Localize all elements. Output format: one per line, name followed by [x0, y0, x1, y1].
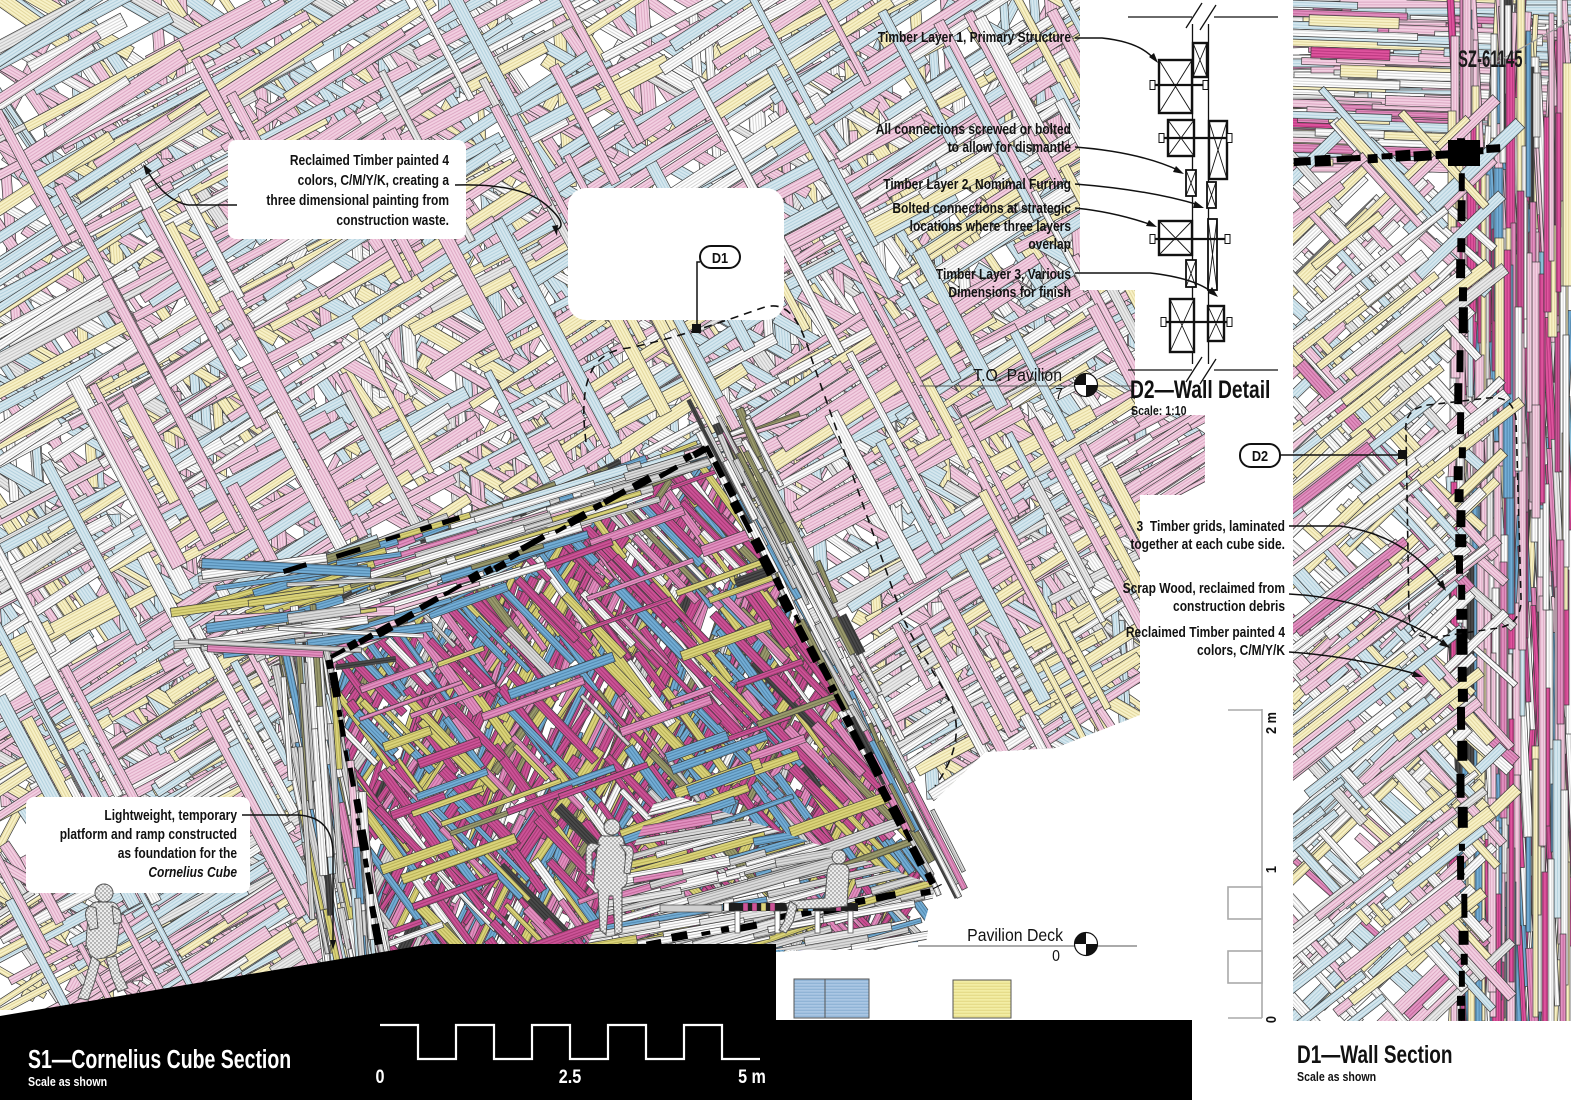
svg-text:to allow for dismantle: to allow for dismantle [948, 139, 1072, 156]
svg-text:2 m: 2 m [1262, 712, 1279, 734]
svg-text:D2—Wall Detail: D2—Wall Detail [1130, 376, 1270, 404]
svg-text:Scale: 1:10: Scale: 1:10 [1131, 404, 1186, 418]
svg-text:1: 1 [1262, 866, 1279, 873]
svg-text:overlap: overlap [1028, 236, 1071, 253]
svg-text:construction debris: construction debris [1173, 598, 1285, 615]
svg-text:2.5: 2.5 [559, 1066, 582, 1088]
svg-text:7: 7 [1055, 385, 1063, 403]
svg-text:Scale as shown: Scale as shown [28, 1075, 107, 1089]
svg-text:Reclaimed Timber painted 4: Reclaimed Timber painted 4 [1126, 624, 1286, 641]
svg-text:3 Timber grids, laminated: 3 Timber grids, laminated [1137, 518, 1285, 535]
svg-text:D1: D1 [712, 249, 729, 266]
svg-text:SZ-61145: SZ-61145 [1458, 47, 1522, 73]
svg-text:Reclaimed Timber painted 4: Reclaimed Timber painted 4 [290, 152, 450, 169]
svg-text:colors, C/M/Y/K: colors, C/M/Y/K [1197, 642, 1285, 659]
svg-text:Lightweight, temporary: Lightweight, temporary [104, 807, 237, 824]
svg-text:as foundation for the: as foundation for the [118, 845, 238, 862]
svg-text:Dimensions for finish: Dimensions for finish [948, 284, 1071, 301]
svg-text:construction waste.: construction waste. [336, 212, 449, 229]
svg-text:locations where three layers: locations where three layers [910, 218, 1071, 235]
svg-text:All connections screwed or bol: All connections screwed or bolted [876, 121, 1071, 138]
svg-text:together at each cube side.: together at each cube side. [1130, 536, 1285, 553]
svg-text:D1—Wall Section: D1—Wall Section [1297, 1040, 1452, 1068]
svg-text:Bolted connections at strategi: Bolted connections at strategic [892, 200, 1071, 217]
svg-text:T.O. Pavilion: T.O. Pavilion [973, 365, 1062, 385]
svg-text:Timber Layer 2, Nomimal Furrin: Timber Layer 2, Nomimal Furring [883, 176, 1071, 193]
svg-text:0: 0 [1262, 1016, 1279, 1023]
svg-text:Scale as shown: Scale as shown [1297, 1070, 1376, 1084]
svg-text:platform and ramp constructed: platform and ramp constructed [60, 826, 237, 843]
svg-text:Cornelius Cube: Cornelius Cube [148, 864, 237, 881]
svg-text:5 m: 5 m [738, 1066, 766, 1088]
svg-text:Timber Layer 1, Primary Struct: Timber Layer 1, Primary Structure [878, 29, 1072, 46]
svg-text:D2: D2 [1252, 447, 1269, 464]
svg-text:0: 0 [1052, 947, 1060, 965]
svg-text:Pavilion Deck: Pavilion Deck [967, 925, 1063, 945]
svg-text:S1—Cornelius Cube Section: S1—Cornelius Cube Section [28, 1044, 291, 1073]
svg-text:0: 0 [376, 1066, 385, 1088]
svg-text:colors, C/M/Y/K, creating a: colors, C/M/Y/K, creating a [298, 172, 450, 189]
svg-text:Timber Layer 3, Various: Timber Layer 3, Various [936, 266, 1071, 283]
svg-text:Scrap Wood, reclaimed from: Scrap Wood, reclaimed from [1123, 580, 1285, 597]
svg-text:three dimensional painting fro: three dimensional painting from [266, 192, 449, 209]
